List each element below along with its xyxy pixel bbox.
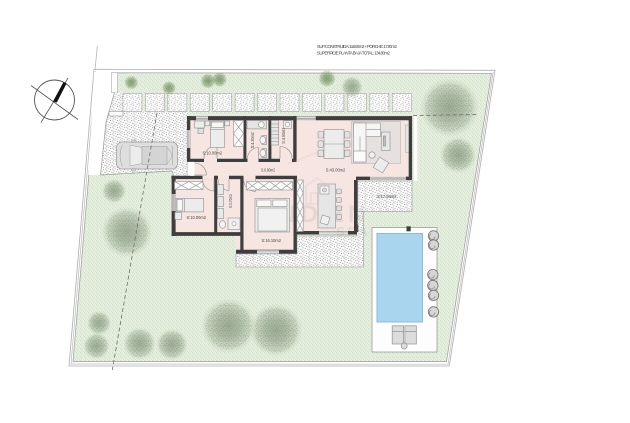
svg-text:S:10.00m2: S:10.00m2 [187, 215, 207, 220]
svg-text:S:10.00m2: S:10.00m2 [203, 150, 223, 155]
svg-text:S:16.10m2: S:16.10m2 [262, 238, 282, 243]
svg-text:S:6.60m2: S:6.60m2 [261, 168, 275, 173]
svg-text:SUPERFICIE PLANTA BAJA TOTAL:: SUPERFICIE PLANTA BAJA TOTAL: 134.80m2 [317, 50, 390, 55]
svg-text:SPA: SPA [336, 224, 371, 239]
svg-text:S:17.59m2: S:17.59m2 [377, 194, 397, 199]
svg-text:S:43.00m2: S:43.00m2 [326, 168, 346, 173]
svg-text:S:4.30m2: S:4.30m2 [250, 132, 255, 149]
svg-text:SUP. CONSTRUIDA: 116.90m2 + PO: SUP. CONSTRUIDA: 116.90m2 + PORCHE: 17.9… [317, 44, 397, 49]
svg-text:S:3.70m2: S:3.70m2 [228, 194, 233, 208]
svg-text:S:4.50m2: S:4.50m2 [281, 127, 286, 144]
